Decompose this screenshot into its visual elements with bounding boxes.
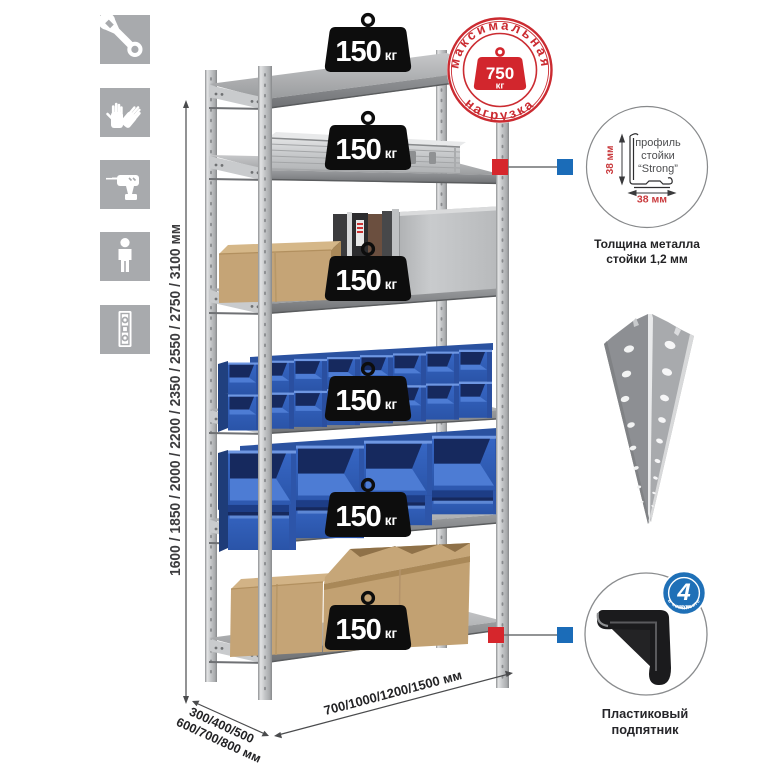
svg-text:38 мм: 38 мм	[605, 146, 616, 175]
svg-text:1600 / 1850 / 2000 / 2200 / 23: 1600 / 1850 / 2000 / 2200 / 2350 / 2550 …	[167, 224, 184, 576]
svg-text:4: 4	[676, 579, 690, 606]
svg-text:подпятник: подпятник	[612, 722, 680, 737]
svg-text:кг: кг	[496, 81, 505, 92]
svg-text:стойки 1,2 мм: стойки 1,2 мм	[606, 252, 688, 266]
svg-text:Толщина металла: Толщина металла	[594, 237, 700, 251]
svg-text:Пластиковый: Пластиковый	[602, 706, 688, 721]
svg-text:профиль: профиль	[635, 137, 681, 149]
svg-text:700/1000/1200/1500 мм: 700/1000/1200/1500 мм	[322, 667, 463, 718]
svg-text:стойки: стойки	[641, 150, 675, 162]
svg-text:“Strong”: “Strong”	[638, 163, 678, 175]
svg-text:38 мм: 38 мм	[637, 194, 667, 206]
